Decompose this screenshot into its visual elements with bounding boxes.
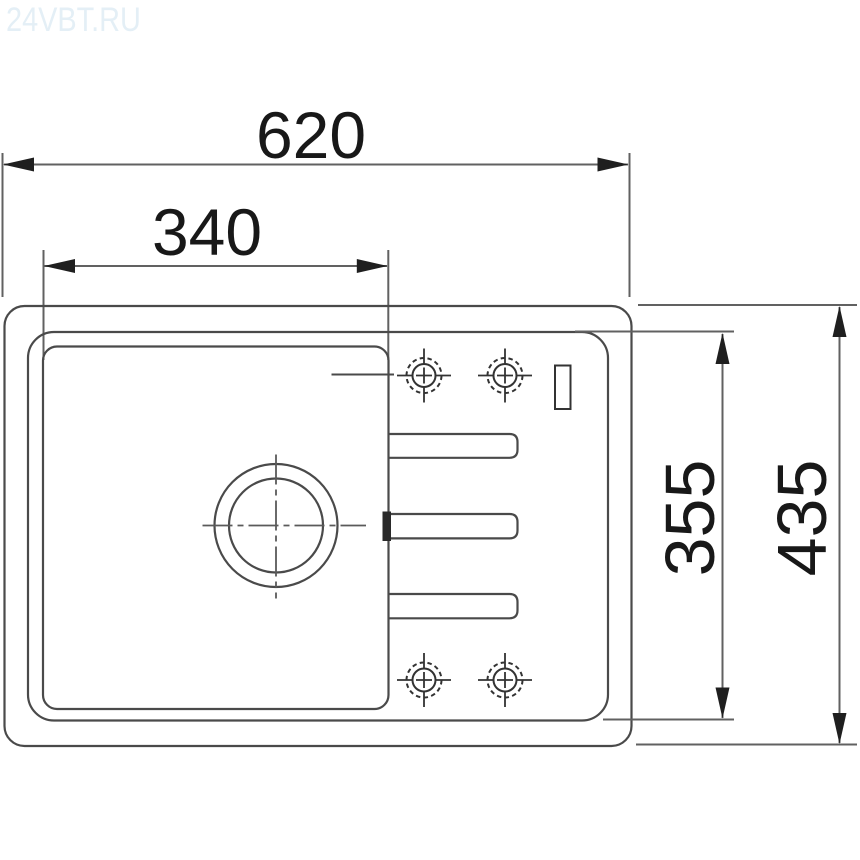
svg-text:355: 355 bbox=[651, 460, 729, 577]
svg-text:620: 620 bbox=[256, 98, 366, 172]
svg-text:435: 435 bbox=[763, 460, 841, 577]
svg-text:340: 340 bbox=[152, 195, 262, 269]
svg-text:24VBT.RU: 24VBT.RU bbox=[6, 0, 141, 39]
